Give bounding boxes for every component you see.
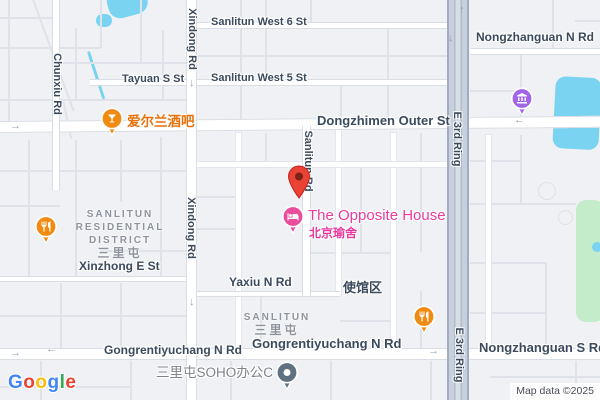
minor-road (430, 361, 432, 400)
park-path (558, 210, 573, 225)
street-label-vertical: E 3rd Ring (451, 111, 463, 166)
minor-road (470, 262, 545, 264)
poi-label[interactable]: 爱尔兰酒吧 (127, 110, 195, 130)
street-label: Tayuan S St (122, 73, 184, 85)
minor-road (197, 55, 447, 57)
poi-hotel-icon[interactable] (280, 205, 306, 237)
right-arrow-icon: → (428, 346, 439, 356)
minor-road (265, 133, 267, 165)
poi-label[interactable]: The Opposite House (308, 207, 446, 224)
poi-restaurant-icon[interactable] (33, 215, 59, 247)
minor-road (330, 361, 332, 400)
minor-road (520, 135, 522, 203)
minor-road (0, 170, 186, 172)
street-label: Xinzhong E St (79, 259, 160, 273)
street-label: 使馆区 (343, 277, 382, 296)
poi-label[interactable]: 北京瑜舍 (309, 224, 357, 241)
right-arrow-icon: → (10, 348, 21, 358)
street-label: Nongzhanguan S Rd (479, 340, 600, 355)
street-label: Sanlitun West 5 St (211, 72, 307, 84)
water-area (87, 51, 105, 99)
map-canvas[interactable]: →←→←→↓↓↑↓Sanlitun West 6 StTayuan S StSa… (0, 0, 600, 400)
minor-road (0, 205, 60, 207)
local-road (486, 135, 491, 348)
minor-road (140, 0, 142, 62)
minor-road (197, 196, 238, 198)
minor-road (490, 376, 600, 378)
minor-road (197, 228, 238, 230)
major-road (470, 48, 600, 55)
poi-bar-icon[interactable] (99, 107, 125, 139)
minor-road (575, 20, 600, 22)
minor-road (0, 99, 186, 101)
google-logo[interactable]: Google (8, 372, 76, 394)
street-label-vertical: Xindong Rd (186, 8, 198, 70)
down-arrow-icon: ↓ (189, 297, 195, 307)
minor-road (470, 312, 545, 314)
street-label-vertical: Xindong Rd (185, 197, 197, 259)
park-path (538, 182, 556, 200)
district-label: SANLITUN三里屯 (244, 311, 311, 337)
minor-road (387, 29, 389, 121)
major-road (0, 276, 192, 282)
water-area (96, 14, 112, 27)
street-label-vertical: E 3rd Ring (453, 327, 465, 382)
google-logo-letter: o (35, 372, 47, 393)
right-arrow-icon: → (10, 121, 21, 131)
local-road (197, 162, 447, 167)
minor-road (310, 0, 312, 22)
minor-road (311, 252, 393, 254)
up-arrow-icon: ↑ (459, 5, 465, 15)
left-arrow-icon: ← (46, 344, 57, 354)
minor-road (130, 361, 132, 400)
google-logo-letter: g (48, 372, 60, 393)
minor-road (470, 160, 520, 162)
district-label: SANLITUNRESIDENTIALDISTRICT三里屯 (76, 208, 165, 260)
street-label: Yaxiu N Rd (229, 275, 292, 289)
destination-pin-icon[interactable] (287, 165, 311, 199)
down-arrow-icon: ↓ (189, 78, 195, 88)
park-area (576, 200, 600, 322)
down-arrow-icon: ↓ (448, 33, 454, 43)
google-logo-letter: G (8, 372, 23, 393)
minor-road (100, 0, 102, 48)
street-label: 三里屯SOHO办公C (156, 361, 273, 381)
minor-road (0, 315, 186, 317)
minor-road (545, 262, 547, 348)
minor-road (28, 140, 30, 277)
street-label: Gongrentiyuchang N Rd (104, 343, 242, 357)
poi-place-icon[interactable] (274, 361, 300, 393)
minor-road (162, 30, 164, 100)
minor-road (60, 62, 186, 64)
map-attribution-text: Map data ©2025 (516, 385, 594, 397)
minor-road (420, 133, 422, 252)
street-label: Sanlitun West 6 St (211, 16, 307, 28)
minor-road (265, 0, 267, 79)
minor-road (0, 17, 53, 19)
water-area (592, 242, 600, 252)
street-label: Nongzhanguan N Rd (476, 30, 594, 44)
water-area (552, 76, 600, 150)
map-attribution: Map data ©2025 (510, 383, 600, 400)
major-road (190, 291, 340, 297)
google-logo-letter: o (23, 372, 35, 393)
street-label: Dongzhimen Outer St (317, 113, 450, 128)
street-label: Gongrentiyuchang N Rd (252, 336, 402, 351)
poi-museum-icon[interactable] (509, 87, 535, 119)
minor-road (75, 28, 77, 100)
street-label-vertical: Chunxiu Rd (51, 53, 63, 115)
poi-restaurant-icon[interactable] (411, 305, 437, 337)
minor-road (340, 320, 393, 322)
google-logo-letter: e (65, 372, 76, 393)
